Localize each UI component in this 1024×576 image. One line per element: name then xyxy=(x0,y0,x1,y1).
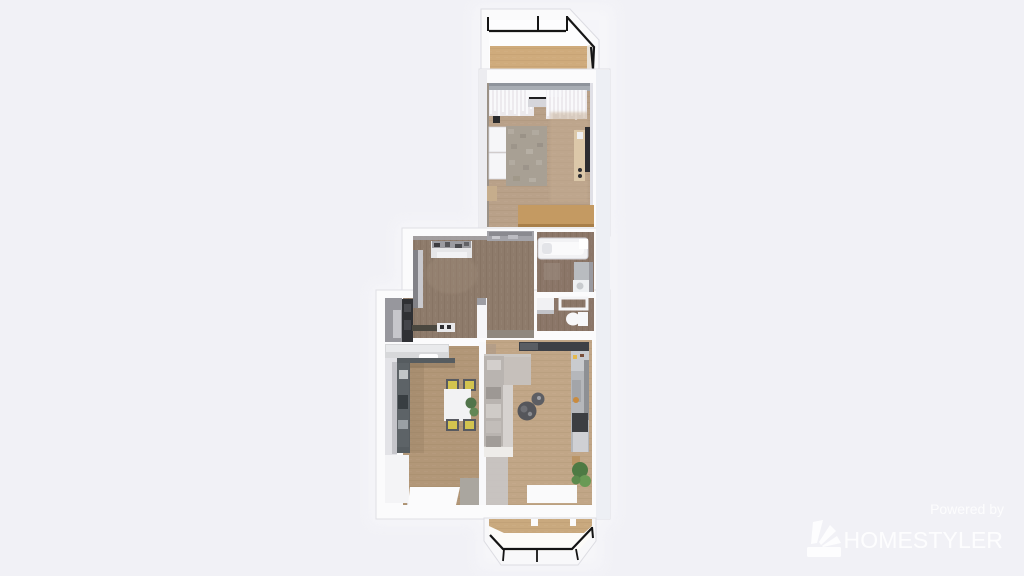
svg-text:HOMESTYLER: HOMESTYLER xyxy=(844,527,1003,553)
svg-text:Powered by: Powered by xyxy=(930,501,1004,517)
